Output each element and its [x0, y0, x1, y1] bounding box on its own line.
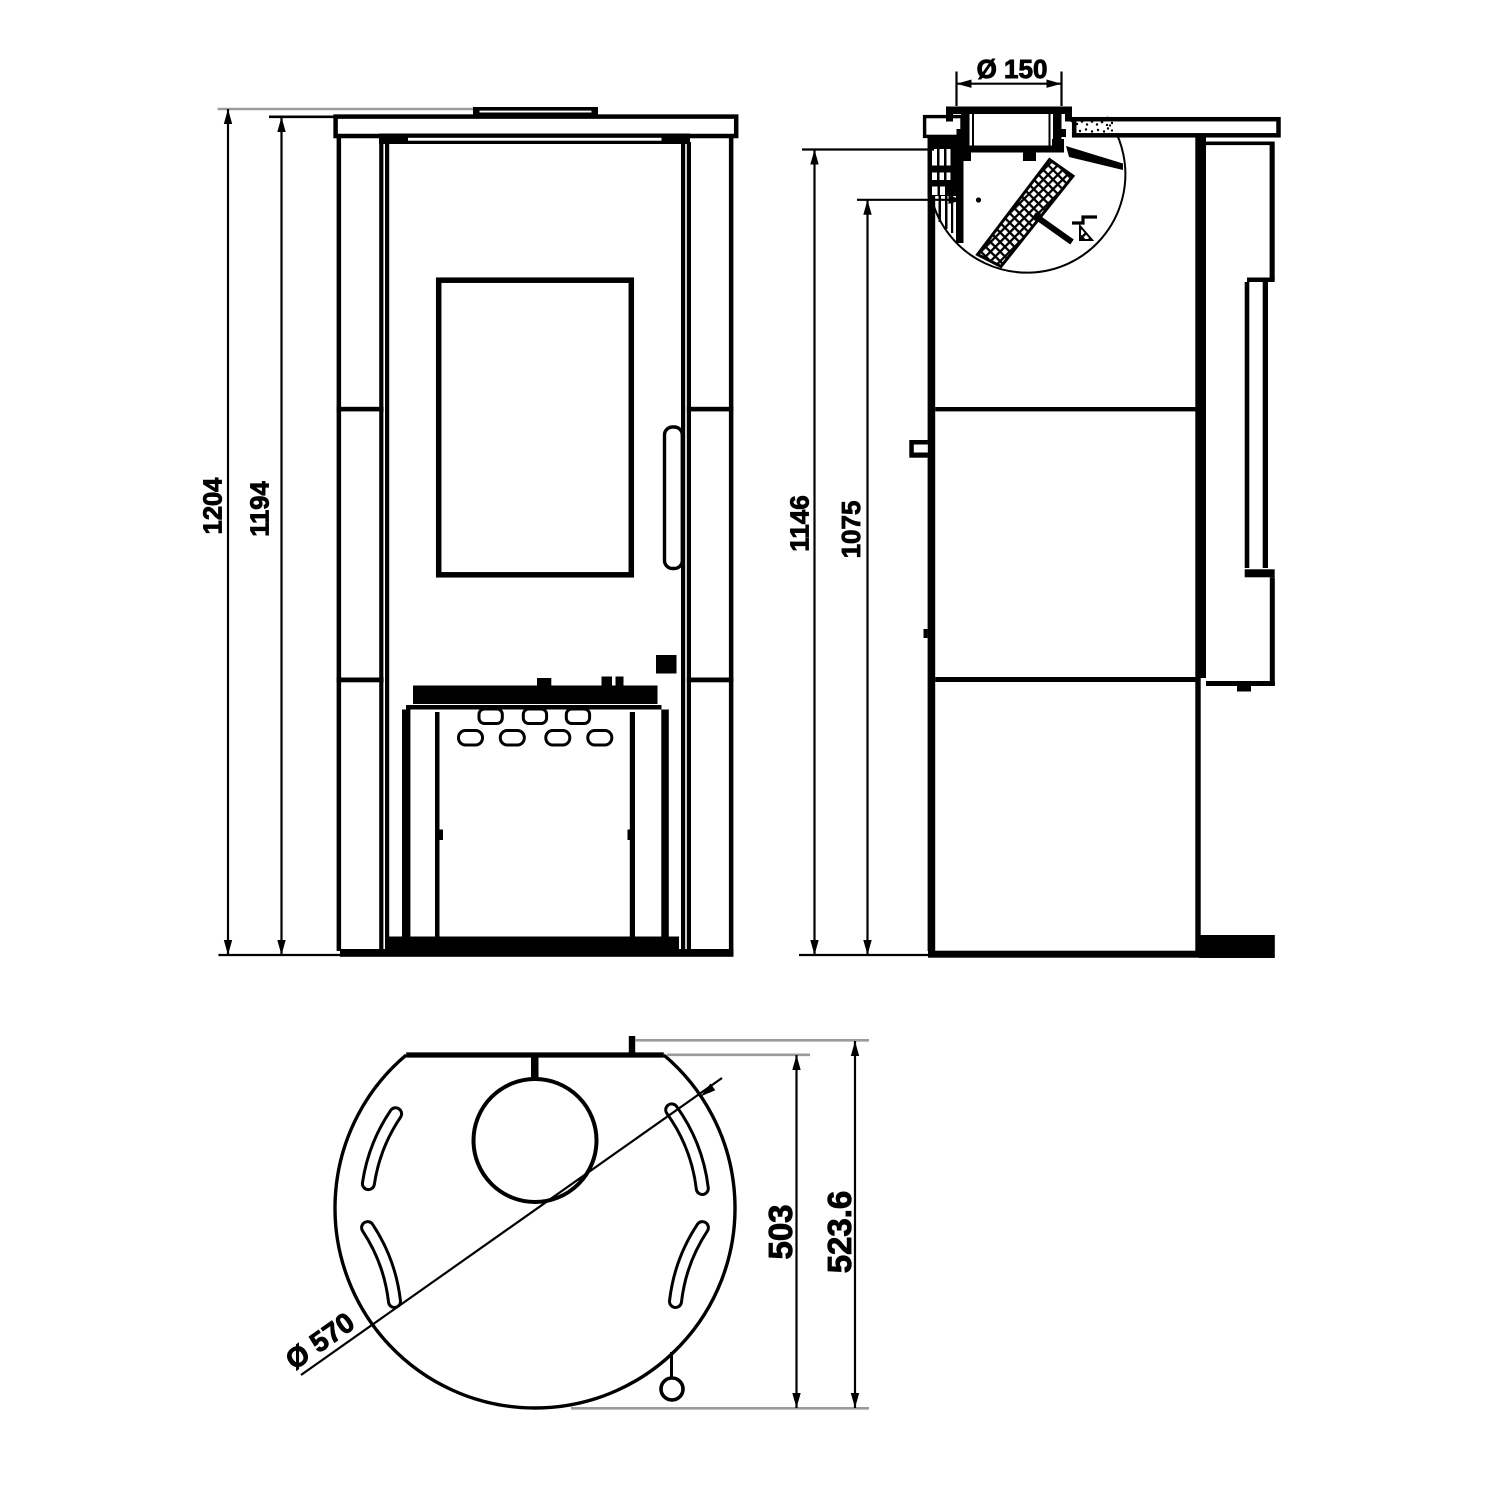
svg-text:1194: 1194 — [247, 481, 275, 537]
svg-text:Ø 150: Ø 150 — [977, 54, 1048, 84]
svg-text:1204: 1204 — [200, 477, 228, 535]
svg-text:523.6: 523.6 — [821, 1191, 858, 1274]
svg-text:1146: 1146 — [785, 495, 815, 551]
svg-text:1075: 1075 — [836, 501, 866, 559]
svg-text:503: 503 — [762, 1204, 799, 1259]
